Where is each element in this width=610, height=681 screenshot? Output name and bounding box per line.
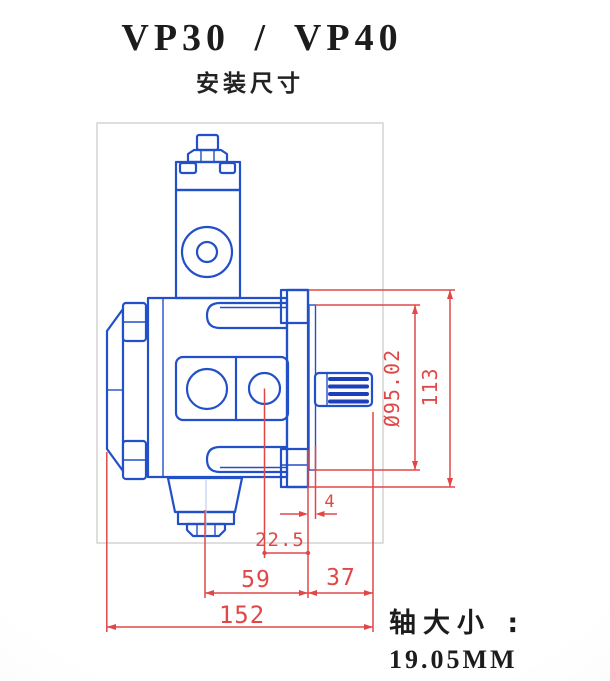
shaft-spline (328, 385, 369, 389)
svg-text:152: 152 (219, 601, 265, 629)
port-block (176, 357, 288, 420)
svg-text:4: 4 (324, 492, 335, 512)
dimension-59: 59 (205, 567, 308, 596)
pump-outline (107, 135, 372, 536)
drive-shaft (315, 373, 372, 406)
svg-text:Ø95.02: Ø95.02 (380, 349, 404, 427)
shaft-spline (328, 392, 369, 396)
svg-text:113: 113 (418, 367, 442, 406)
mounting-flange (281, 290, 316, 487)
svg-text:22.5: 22.5 (255, 529, 305, 551)
suction-port (187, 369, 227, 409)
svg-text:59: 59 (241, 567, 271, 593)
rear-cover (107, 303, 146, 479)
shaft-spline (328, 400, 369, 404)
svg-text:37: 37 (326, 565, 356, 591)
dimension-flange-height: 113 (418, 290, 453, 487)
shaft-spline (328, 377, 369, 381)
dimension-22-5: 22.5 (255, 529, 310, 555)
pump-body (148, 298, 287, 477)
pressure-adjust-screw (176, 135, 240, 298)
dimension-37: 37 (308, 565, 373, 596)
pump-dimension-sheet: VP30 / VP40 安装尺寸 (0, 0, 610, 681)
dimension-152: 152 (107, 601, 373, 630)
top-port-boss (182, 227, 232, 277)
technical-drawing: 152 59 37 22.5 (0, 0, 610, 681)
dimension-pilot-diameter: Ø95.02 (380, 305, 418, 470)
shaft-size-value: 19.05MM (389, 645, 525, 675)
shaft-size-label: 轴大小 : (389, 601, 525, 640)
shaft-size-note: 轴大小 : 19.05MM (389, 601, 525, 675)
